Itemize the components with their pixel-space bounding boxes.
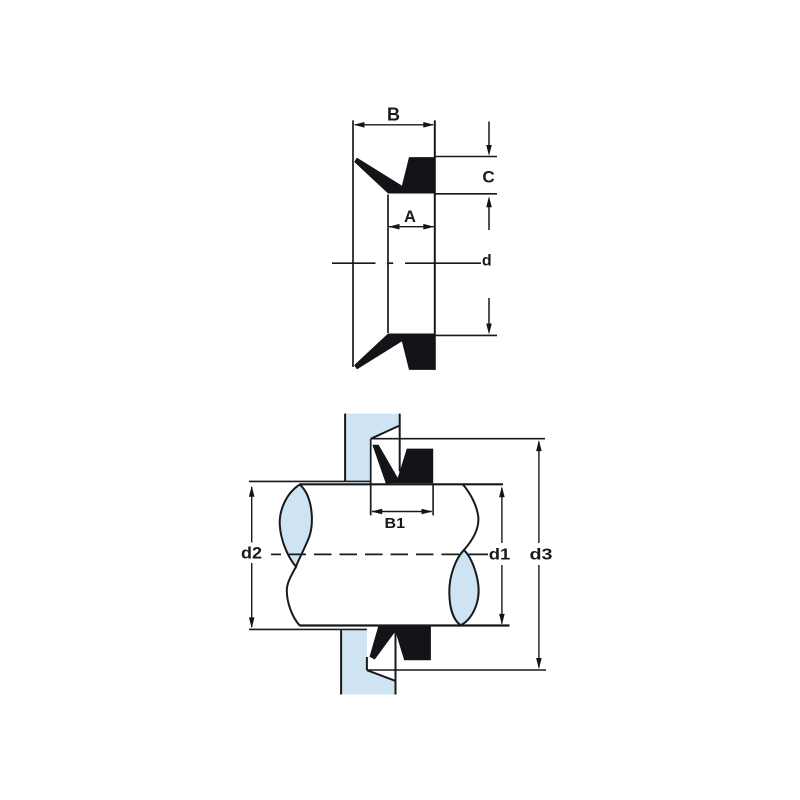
svg-text:d3: d3	[530, 546, 553, 563]
svg-text:A: A	[404, 208, 416, 226]
svg-text:d2: d2	[241, 544, 262, 563]
svg-text:d: d	[482, 253, 492, 270]
svg-text:C: C	[482, 167, 494, 186]
svg-text:d1: d1	[489, 546, 511, 563]
svg-text:B: B	[387, 104, 400, 124]
svg-text:B1: B1	[385, 515, 406, 532]
